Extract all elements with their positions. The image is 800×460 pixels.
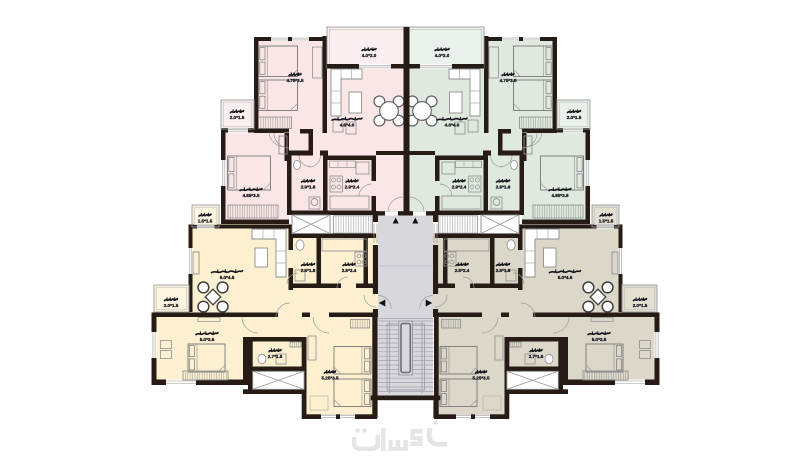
svg-text:4.85*3.5: 4.85*3.5	[551, 193, 569, 198]
svg-text:4.85*3.5: 4.85*3.5	[242, 193, 260, 198]
svg-text:4.0*2.0: 4.0*2.0	[362, 53, 377, 58]
svg-text:4.6*4.0: 4.6*4.0	[340, 122, 355, 127]
svg-text:2.9*2.4: 2.9*2.4	[345, 184, 360, 189]
svg-text:2.9*1.8: 2.9*1.8	[301, 184, 316, 189]
svg-text:2.0*1.5: 2.0*1.5	[633, 303, 648, 308]
svg-text:5.0*4.5: 5.0*4.5	[220, 275, 235, 280]
svg-text:1.5*1.5: 1.5*1.5	[599, 218, 614, 223]
svg-text:1.5*1.5: 1.5*1.5	[198, 218, 213, 223]
svg-text:2.7*1.5: 2.7*1.5	[529, 354, 544, 359]
svg-text:4.75*3.5: 4.75*3.5	[286, 78, 304, 83]
svg-text:2.5*1.8: 2.5*1.8	[496, 268, 511, 273]
svg-text:5.25*3.5: 5.25*3.5	[321, 375, 339, 380]
svg-text:2.0*1.5: 2.0*1.5	[230, 115, 245, 120]
svg-text:5.0*3.5: 5.0*3.5	[592, 337, 607, 342]
svg-text:2.9*1.8: 2.9*1.8	[496, 184, 511, 189]
svg-text:2.7*1.5: 2.7*1.5	[268, 354, 283, 359]
svg-text:2.0*1.5: 2.0*1.5	[567, 115, 582, 120]
svg-text:5.0*4.5: 5.0*4.5	[558, 275, 573, 280]
svg-text:4.0*2.0: 4.0*2.0	[435, 53, 450, 58]
svg-text:4.75*3.5: 4.75*3.5	[499, 78, 517, 83]
svg-text:4.6*4.0: 4.6*4.0	[445, 122, 460, 127]
svg-text:2.9*2.4: 2.9*2.4	[452, 184, 467, 189]
svg-text:2.5*2.4: 2.5*2.4	[342, 268, 357, 273]
svg-text:2.5*2.4: 2.5*2.4	[455, 268, 470, 273]
svg-text:5.25*3.5: 5.25*3.5	[472, 375, 490, 380]
svg-text:2.5*1.8: 2.5*1.8	[301, 268, 316, 273]
svg-text:2.0*1.5: 2.0*1.5	[164, 303, 179, 308]
svg-text:5.0*3.5: 5.0*3.5	[200, 337, 215, 342]
